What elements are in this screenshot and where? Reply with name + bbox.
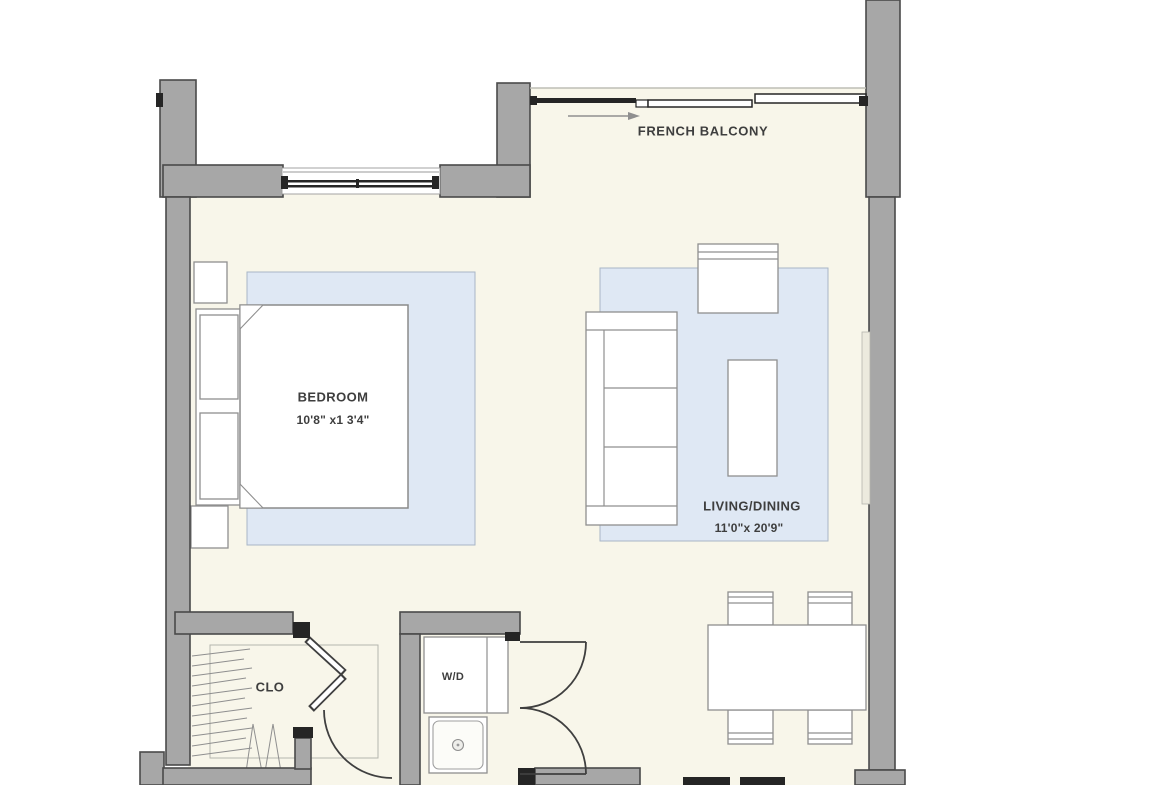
coffee-table [728,360,777,476]
washer-dryer [424,637,508,713]
closet-label: CLO [256,680,285,695]
laundry-sink [429,717,487,773]
bedroom-label: BEDROOM [298,390,369,405]
nightstand-bottom [191,506,228,548]
washer-dryer-label: W/D [442,671,464,683]
living-dining-dimensions: 11'0"x 20'9" [715,521,784,535]
tv-console [698,244,778,313]
right-wall-window [862,332,870,504]
living-dining-label: LIVING/DINING [703,499,801,514]
floor-plan: FRENCH BALCONY BEDROOM 10'8" x1 3'4" LIV… [0,0,1170,785]
bedroom-window [281,168,440,194]
dining-table [708,625,866,710]
floor-plan-canvas [0,0,1170,785]
sofa [586,312,677,525]
balcony-label: FRENCH BALCONY [638,124,768,139]
bed [196,305,408,508]
bedroom-dimensions: 10'8" x1 3'4" [296,413,369,427]
nightstand-top [194,262,227,303]
